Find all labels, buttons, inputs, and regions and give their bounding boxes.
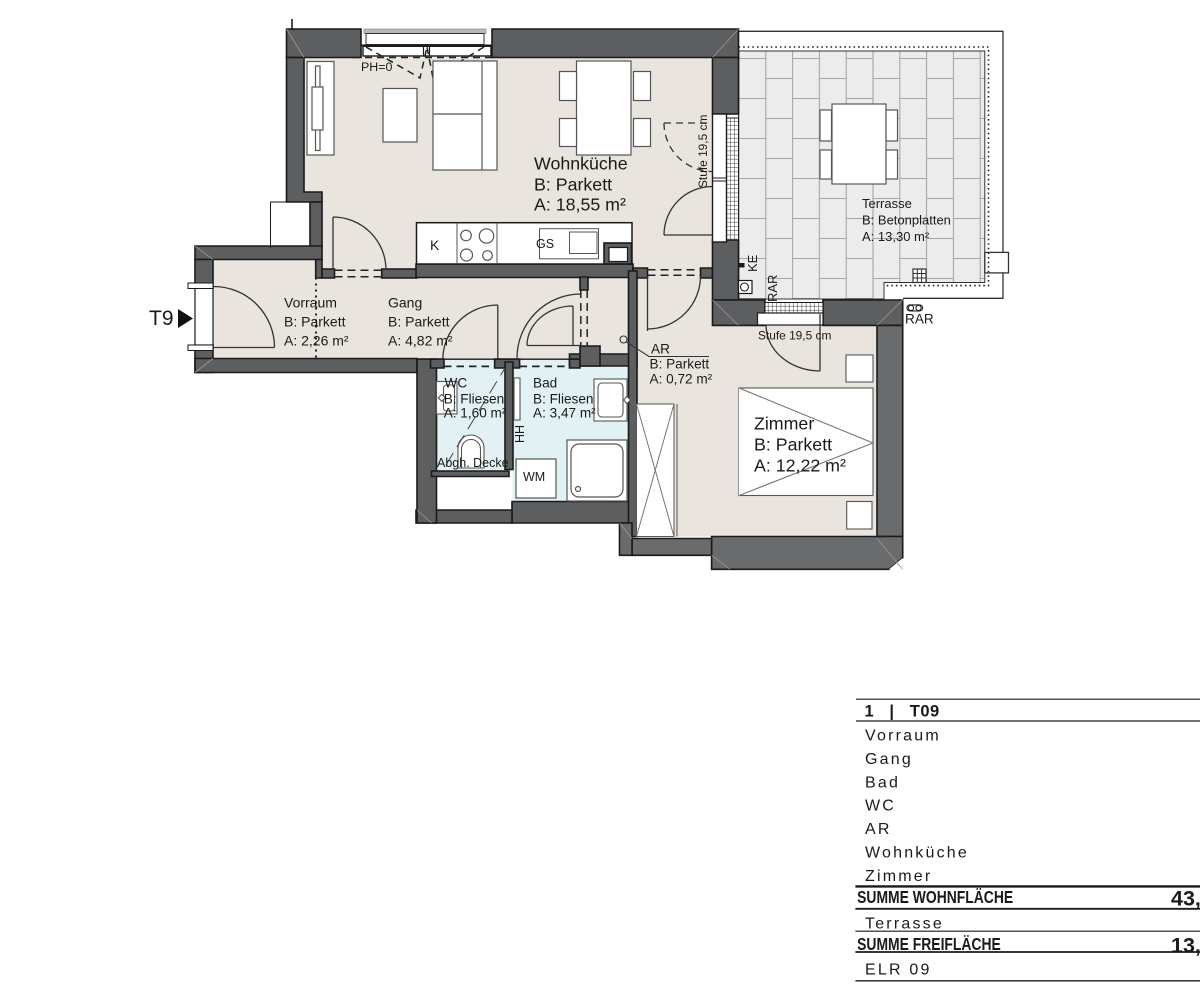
svg-text:Gang: Gang — [388, 295, 422, 311]
svg-text:AR: AR — [651, 342, 670, 357]
svg-text:Stufe 19,5 cm: Stufe 19,5 cm — [696, 115, 710, 188]
svg-text:A: 18,55 m²: A: 18,55 m² — [534, 195, 626, 215]
svg-text:B: Parkett: B: Parkett — [754, 435, 832, 455]
svg-text:B: Betonplatten: B: Betonplatten — [862, 213, 951, 228]
svg-text:HH: HH — [513, 425, 527, 443]
svg-text:WC: WC — [865, 798, 896, 815]
svg-text:Vorraum: Vorraum — [865, 728, 941, 745]
svg-text:B: Parkett: B: Parkett — [388, 314, 450, 330]
svg-text:Bad: Bad — [533, 376, 557, 391]
svg-text:A: 0,72 m²: A: 0,72 m² — [650, 372, 713, 387]
svg-text:Gang: Gang — [865, 751, 913, 768]
svg-text:Wohnküche: Wohnküche — [865, 845, 969, 862]
svg-text:Zimmer: Zimmer — [754, 414, 814, 434]
svg-text:PH=0: PH=0 — [361, 60, 392, 74]
svg-text:B: Parkett: B: Parkett — [534, 175, 612, 195]
svg-text:B: Parkett: B: Parkett — [284, 314, 346, 330]
svg-text:Bad: Bad — [865, 774, 900, 791]
svg-text:A: 2,26 m²: A: 2,26 m² — [284, 333, 349, 349]
svg-text:RAR: RAR — [905, 312, 934, 327]
svg-text:AR: AR — [865, 821, 892, 838]
svg-text:T9: T9 — [149, 307, 174, 330]
svg-text:WM: WM — [523, 470, 545, 484]
svg-text:ELR 09: ELR 09 — [865, 962, 932, 979]
svg-text:43,62: 43,62 — [1171, 887, 1200, 911]
svg-text:A: 3,47 m²: A: 3,47 m² — [533, 405, 596, 420]
svg-text:Zimmer: Zimmer — [865, 868, 932, 885]
svg-text:13,30: 13,30 — [1171, 934, 1200, 958]
svg-text:KE: KE — [745, 254, 760, 272]
svg-text:WC: WC — [445, 376, 468, 391]
svg-text:Vorraum: Vorraum — [284, 295, 337, 311]
svg-text:Terrasse: Terrasse — [862, 196, 912, 211]
svg-text:A: 13,30 m²: A: 13,30 m² — [862, 229, 930, 244]
svg-text:Wohnküche: Wohnküche — [534, 154, 628, 174]
svg-text:A: 1,60 m²: A: 1,60 m² — [444, 405, 507, 420]
svg-text:RAR: RAR — [765, 275, 780, 302]
svg-text:A: 12,22 m²: A: 12,22 m² — [754, 456, 846, 476]
svg-text:Terrasse: Terrasse — [865, 916, 944, 933]
svg-text:K: K — [430, 237, 440, 253]
svg-text:1 | T09: 1 | T09 — [865, 703, 940, 721]
svg-text:Stufe 19,5 cm: Stufe 19,5 cm — [758, 329, 831, 343]
svg-text:B: Parkett: B: Parkett — [650, 357, 710, 372]
svg-text:SUMME FREIFLÄCHE: SUMME FREIFLÄCHE — [857, 934, 1001, 954]
svg-text:A: 4,82 m²: A: 4,82 m² — [388, 333, 453, 349]
svg-text:GS: GS — [536, 237, 554, 251]
svg-text:SUMME WOHNFLÄCHE: SUMME WOHNFLÄCHE — [857, 887, 1013, 907]
svg-text:Abgh. Decke: Abgh. Decke — [437, 456, 509, 470]
